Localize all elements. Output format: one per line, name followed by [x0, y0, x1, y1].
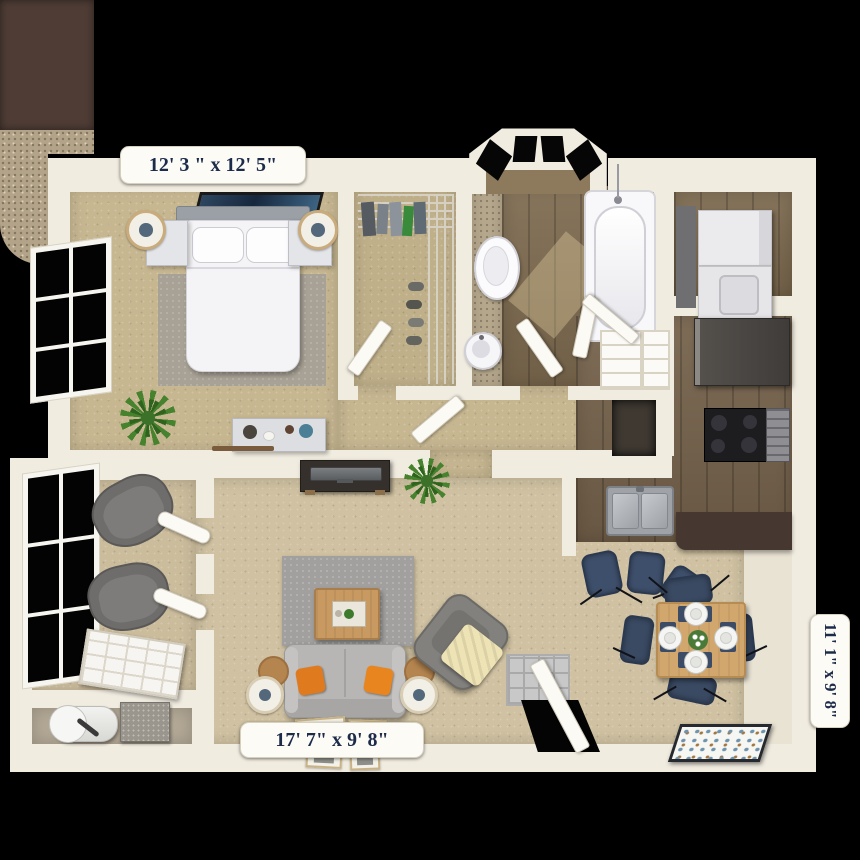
burner: [711, 415, 727, 431]
tv-console: [300, 460, 390, 492]
dresser-ball-brown: [285, 425, 294, 434]
window-pane: [73, 342, 106, 392]
kitchen-corner-cabinet: [676, 512, 792, 550]
counter-granite-top: [0, 130, 94, 154]
dresser-tray: [212, 446, 274, 451]
dryer: [698, 266, 772, 320]
closet-shoes-2: [406, 300, 422, 309]
bedroom-dimensions-text: 12' 3 " x 12' 5": [149, 154, 277, 177]
pantry-niche: [612, 400, 656, 456]
dining-dimensions-label: 11' 1" x 9' 8": [810, 614, 850, 728]
plate-south: [684, 650, 708, 674]
utility-right-wall: [192, 690, 214, 772]
bay-pane-center-right: [541, 136, 566, 162]
shower-pipe: [617, 164, 619, 198]
bedroom-lamp-right: [298, 210, 338, 250]
window-pane: [36, 248, 69, 298]
floorplan-canvas: 12' 3 " x 12' 5" 17' 7" x 9' 8" 11' 1" x…: [0, 0, 860, 860]
bay-window: [452, 122, 624, 194]
dresser-vase: [243, 425, 257, 439]
laundry-side-cabinet: [676, 206, 696, 308]
toilet-seat: [483, 246, 509, 286]
bedroom-plant: [120, 390, 176, 446]
washer-control-strip: [759, 211, 771, 265]
tray-plant: [344, 609, 354, 619]
closet-clothes-1: [361, 202, 376, 237]
kitchen-double-sink: [606, 486, 674, 536]
pedestal-sink: [464, 332, 502, 370]
plate-east: [714, 626, 738, 650]
closet-shoes-3: [408, 318, 424, 327]
sink-bowl: [472, 340, 490, 358]
top-wall-right: [608, 158, 816, 192]
tv-stand: [337, 479, 353, 483]
sofa-back: [285, 699, 405, 717]
sink-basin-left: [612, 493, 639, 529]
closet-clothes-2: [376, 204, 389, 235]
dryer-door: [719, 275, 759, 315]
console-leg-left: [305, 490, 315, 495]
sofa-pillow-orange-left: [295, 665, 326, 696]
range-stove: [704, 408, 768, 462]
water-heater: [52, 706, 118, 742]
refrigerator: [694, 318, 790, 386]
plate-west: [658, 626, 682, 650]
burner: [741, 437, 757, 453]
living-dimensions-text: 17' 7" x 9' 8": [275, 729, 388, 752]
closet-shoes-4: [406, 336, 422, 345]
washer: [698, 210, 772, 266]
sink-faucet: [636, 486, 644, 492]
dresser-ball-blue: [299, 424, 313, 438]
window-pane: [63, 469, 94, 539]
sink-faucet: [479, 335, 484, 340]
closet-clothes-5: [413, 202, 426, 234]
closet-shelf-right: [428, 194, 454, 384]
kitchen-right-counter: [0, 0, 94, 130]
living-lamp-left: [246, 676, 284, 714]
coffee-table-tray: [332, 601, 366, 627]
dining-dimensions-text: 11' 1" x 9' 8": [820, 623, 840, 718]
living-plant: [404, 458, 450, 504]
bedroom-lamp-left: [126, 210, 166, 250]
oven-front: [766, 408, 790, 462]
counter-granite-mid: [0, 154, 48, 188]
window-pane: [73, 243, 106, 293]
closet-shoes-1: [408, 282, 424, 291]
hall-north-wall-a: [338, 386, 358, 400]
window-pane: [36, 298, 69, 348]
bedroom-dimensions-label: 12' 3 " x 12' 5": [120, 146, 306, 184]
burner: [743, 415, 757, 429]
patio-living-wall-c: [196, 630, 214, 692]
window-pane: [73, 292, 106, 342]
burner: [711, 439, 725, 453]
window-pane: [36, 347, 69, 397]
sofa: [284, 644, 406, 718]
patio-living-wall-a: [196, 478, 214, 518]
window-pane: [28, 544, 59, 614]
sofa-pillow-orange-right: [363, 665, 394, 696]
toilet: [474, 236, 520, 300]
plate-north: [684, 602, 708, 626]
hvac-unit: [120, 702, 170, 742]
table-centerpiece: [688, 630, 708, 650]
window-pane: [28, 613, 59, 683]
kitchen-west-stub-wall: [562, 466, 576, 556]
console-leg-right: [375, 490, 385, 495]
living-dimensions-label: 17' 7" x 9' 8": [240, 722, 424, 758]
bedroom-window: [30, 236, 112, 404]
sink-basin-right: [641, 493, 668, 529]
dining-wall-art: [668, 724, 772, 762]
window-pane: [28, 474, 59, 544]
living-lamp-right: [400, 676, 438, 714]
coffee-table: [314, 588, 380, 640]
bed-pillow-left: [192, 227, 244, 263]
bed-blanket-fold: [187, 267, 299, 269]
closet-clothes-3: [389, 202, 403, 237]
pantry-side-wall: [654, 400, 674, 456]
linen-shelves-small: [642, 330, 670, 390]
sofa-cushion-split: [344, 649, 346, 697]
patio-living-wall-b: [196, 554, 214, 594]
bed: [186, 220, 300, 372]
tray-dish: [335, 610, 342, 617]
dresser-dish: [263, 431, 275, 441]
bay-pane-center-left: [513, 136, 538, 162]
closet-clothes-4: [402, 206, 414, 237]
utility-top-wall: [10, 690, 214, 708]
